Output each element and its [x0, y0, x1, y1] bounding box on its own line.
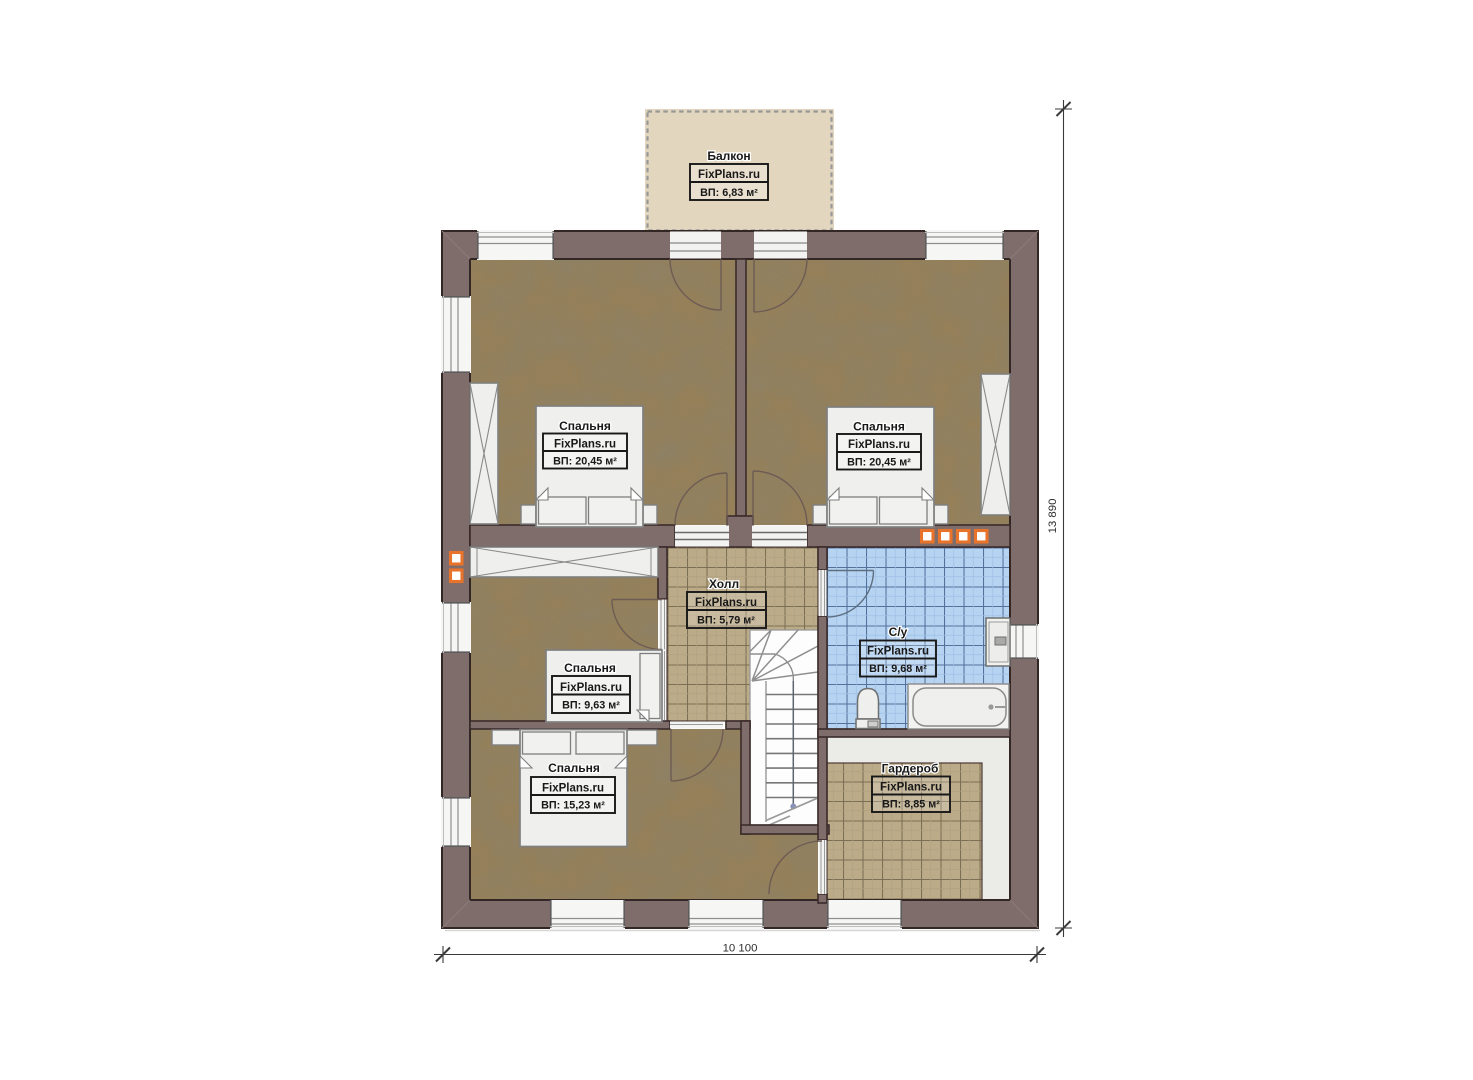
- svg-text:13 890: 13 890: [1047, 499, 1059, 534]
- svg-text:Спальня: Спальня: [559, 419, 611, 433]
- svg-text:Балкон: Балкон: [707, 149, 750, 163]
- svg-text:Спальня: Спальня: [548, 761, 600, 775]
- svg-text:Гардероб: Гардероб: [882, 762, 939, 776]
- svg-text:ВП: 6,83 м²: ВП: 6,83 м²: [700, 187, 758, 199]
- svg-text:С/у: С/у: [889, 625, 908, 639]
- svg-text:FixPlans.ru: FixPlans.ru: [698, 169, 760, 181]
- svg-text:FixPlans.ru: FixPlans.ru: [867, 646, 929, 658]
- svg-text:Спальня: Спальня: [564, 661, 616, 675]
- svg-text:Спальня: Спальня: [853, 420, 905, 434]
- svg-text:FixPlans.ru: FixPlans.ru: [695, 597, 757, 609]
- svg-text:FixPlans.ru: FixPlans.ru: [848, 439, 910, 451]
- svg-text:FixPlans.ru: FixPlans.ru: [554, 439, 616, 451]
- svg-text:ВП: 9,68 м²: ВП: 9,68 м²: [869, 663, 927, 675]
- svg-text:ВП: 5,79 м²: ВП: 5,79 м²: [697, 615, 755, 627]
- svg-text:ВП: 9,63 м²: ВП: 9,63 м²: [562, 700, 620, 712]
- svg-text:ВП: 20,45 м²: ВП: 20,45 м²: [847, 457, 911, 469]
- svg-text:ВП: 8,85 м²: ВП: 8,85 м²: [882, 799, 940, 811]
- svg-text:ВП: 15,23 м²: ВП: 15,23 м²: [541, 800, 605, 812]
- svg-text:ВП: 20,45 м²: ВП: 20,45 м²: [553, 456, 617, 468]
- svg-text:FixPlans.ru: FixPlans.ru: [560, 682, 622, 694]
- svg-text:FixPlans.ru: FixPlans.ru: [880, 782, 942, 794]
- svg-text:10 100: 10 100: [723, 943, 758, 955]
- svg-text:Холл: Холл: [709, 577, 739, 591]
- svg-text:FixPlans.ru: FixPlans.ru: [542, 783, 604, 795]
